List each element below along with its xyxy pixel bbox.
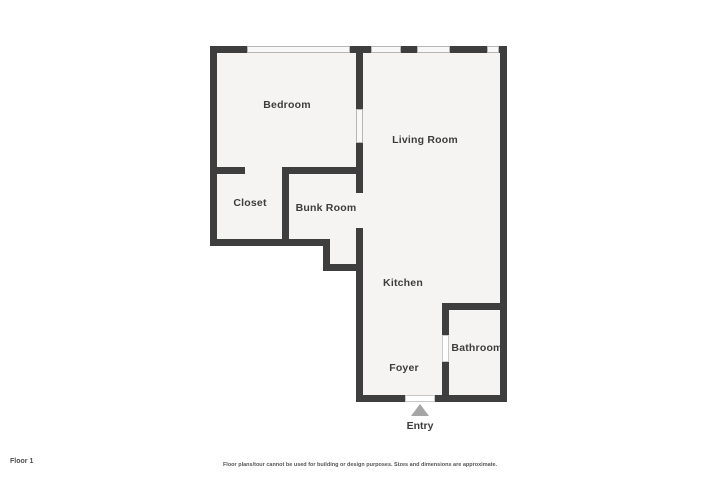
wall-segment (363, 46, 371, 53)
entry-door-threshold (405, 395, 435, 402)
wall-segment (282, 167, 363, 174)
room-label-foyer: Foyer (389, 362, 419, 374)
wall-segment (450, 46, 487, 53)
window (247, 46, 350, 53)
window (417, 46, 450, 53)
wall-segment (442, 303, 507, 310)
wall-segment (356, 46, 363, 109)
room-label-closet: Closet (233, 197, 266, 209)
wall-segment (282, 167, 289, 246)
wall-segment (210, 46, 217, 246)
room-label-kitchen: Kitchen (383, 277, 423, 289)
wall-segment (356, 143, 363, 193)
wall-segment (401, 46, 417, 53)
floorplan-canvas: Bedroom Living Room Closet Bunk Room Kit… (0, 0, 720, 480)
wall-segment (442, 362, 449, 402)
window (487, 46, 499, 53)
room-label-bedroom: Bedroom (263, 99, 311, 111)
entry-arrow-icon (411, 404, 429, 416)
window (371, 46, 401, 53)
window (356, 109, 363, 143)
room-label-bunk-room: Bunk Room (296, 202, 357, 214)
room-label-living-room: Living Room (392, 134, 458, 146)
wall-segment (356, 395, 405, 402)
floor-number-label: Floor 1 (10, 458, 33, 465)
wall-segment (323, 239, 330, 271)
wall-segment (210, 239, 330, 246)
entry-label: Entry (407, 420, 434, 432)
room-label-bathroom: Bathroom (451, 342, 502, 354)
bathroom-door-threshold (442, 335, 449, 362)
disclaimer-text: Floor plans/tour cannot be used for buil… (223, 462, 497, 468)
wall-segment (442, 303, 449, 335)
wall-segment (356, 228, 363, 402)
